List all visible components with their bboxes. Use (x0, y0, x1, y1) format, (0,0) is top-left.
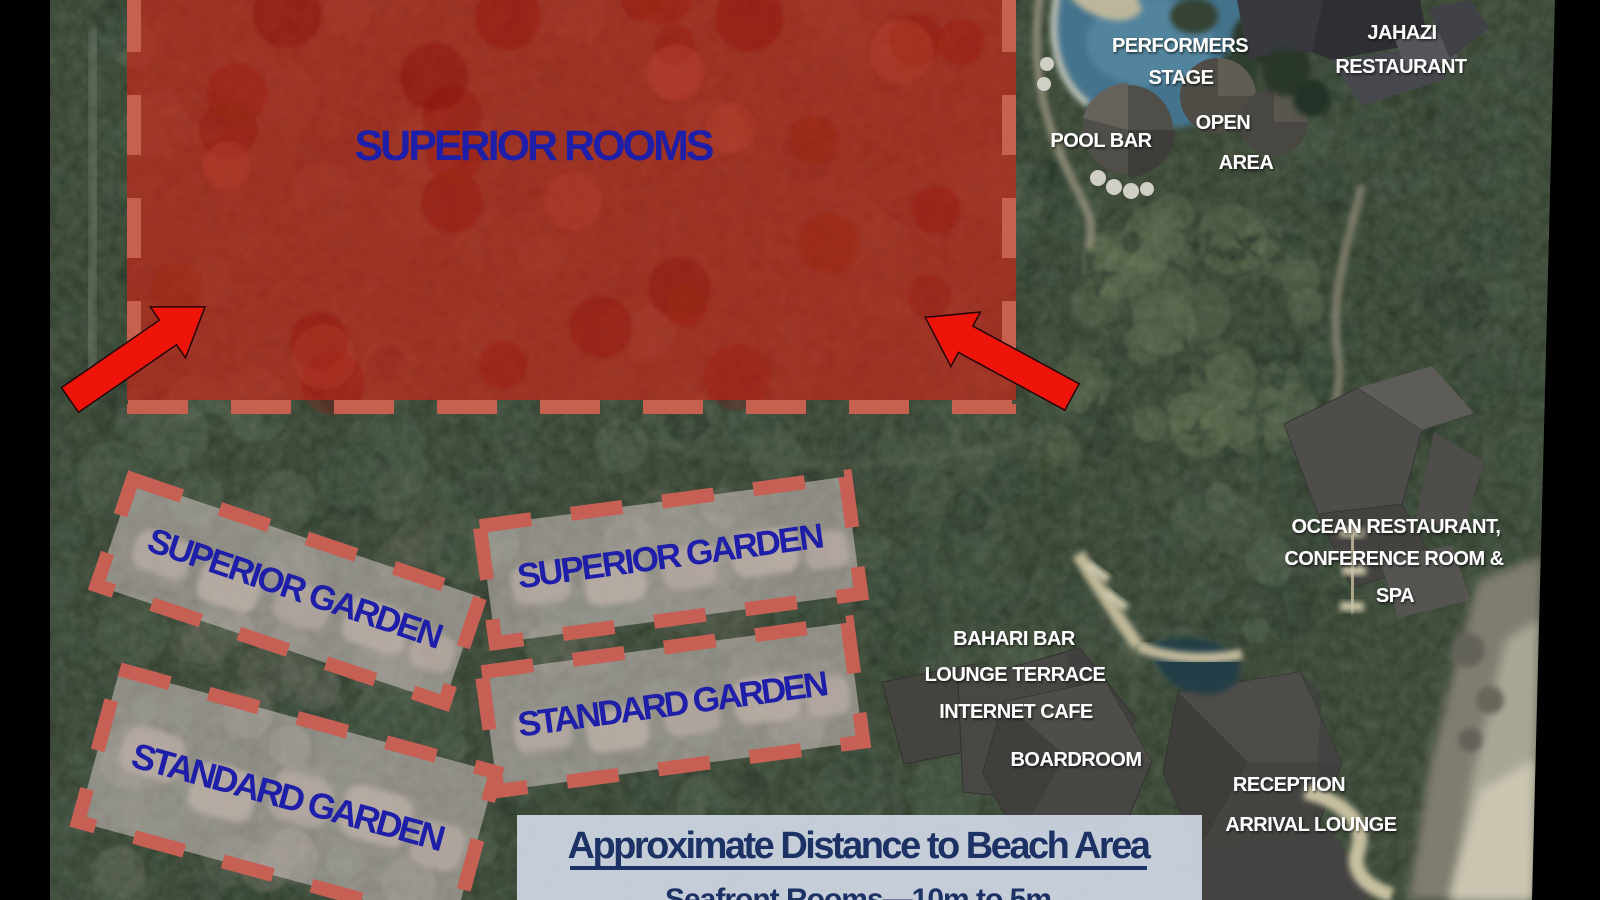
svg-text:PERFORMERS: PERFORMERS (1112, 35, 1248, 57)
svg-text:INTERNET CAFE: INTERNET CAFE (939, 701, 1093, 723)
svg-text:LOUNGE TERRACE: LOUNGE TERRACE (925, 664, 1106, 686)
svg-text:SUPERIOR ROOMS: SUPERIOR ROOMS (355, 122, 713, 170)
svg-text:AREA: AREA (1219, 152, 1274, 174)
svg-text:Seafront Rooms—10m to 5m: Seafront Rooms—10m to 5m (665, 883, 1051, 900)
svg-text:OPEN: OPEN (1196, 112, 1251, 134)
svg-text:OCEAN RESTAURANT,: OCEAN RESTAURANT, (1292, 516, 1501, 538)
svg-text:RESTAURANT: RESTAURANT (1335, 56, 1467, 78)
svg-text:RECEPTION: RECEPTION (1233, 774, 1345, 796)
svg-text:BAHARI BAR: BAHARI BAR (953, 628, 1076, 650)
svg-text:JAHAZI: JAHAZI (1367, 22, 1436, 44)
svg-text:SPA: SPA (1376, 585, 1414, 607)
svg-text:POOL BAR: POOL BAR (1050, 130, 1152, 152)
svg-text:BOARDROOM: BOARDROOM (1010, 749, 1141, 771)
svg-text:CONFERENCE ROOM &: CONFERENCE ROOM & (1284, 548, 1503, 570)
svg-text:ARRIVAL LOUNGE: ARRIVAL LOUNGE (1225, 814, 1396, 836)
svg-text:STAGE: STAGE (1149, 67, 1214, 89)
svg-text:Approximate Distance to Beach: Approximate Distance to Beach Area (568, 825, 1152, 867)
